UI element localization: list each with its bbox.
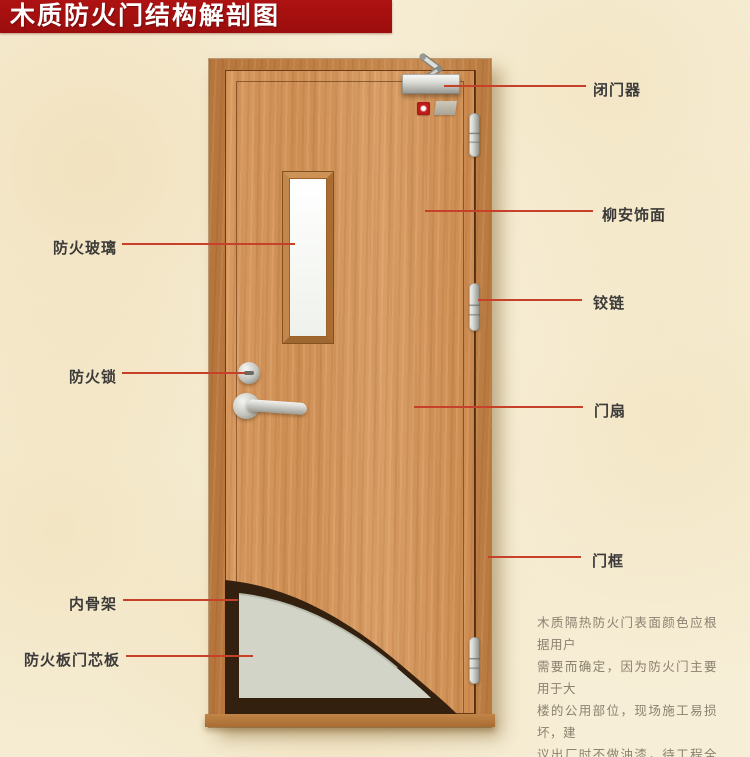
- label-door-frame: 门框: [592, 550, 624, 571]
- leader-door-closer: [444, 85, 586, 87]
- strike-plate: [434, 101, 457, 115]
- alarm-indicator: [417, 102, 430, 115]
- label-core-board: 防火板门芯板: [0, 649, 120, 670]
- leader-veneer: [425, 210, 593, 212]
- label-inner-skeleton: 内骨架: [0, 593, 117, 614]
- label-fire-glass: 防火玻璃: [0, 237, 117, 258]
- leader-hinge: [478, 299, 582, 301]
- leader-inner-skeleton: [123, 599, 238, 601]
- hinge-middle: [469, 283, 480, 331]
- door-closer-body: [402, 74, 460, 94]
- label-fire-lock: 防火锁: [0, 366, 117, 387]
- fire-glass-window: [283, 172, 333, 343]
- alarm-dot-icon: [421, 106, 426, 111]
- diagram-canvas: 木质防火门结构解剖图: [0, 0, 750, 757]
- leader-fire-lock: [122, 372, 246, 374]
- cutaway-section: [225, 570, 475, 714]
- description-text: 木质隔热防火门表面颜色应根据用户 需要而确定，因为防火门主要用于大 楼的公用部位…: [537, 612, 717, 757]
- page-title: 木质防火门结构解剖图: [0, 0, 392, 33]
- door-frame-sill: [205, 714, 495, 727]
- leader-core-board: [126, 655, 253, 657]
- label-hinge: 铰链: [593, 292, 625, 313]
- leader-door-leaf: [414, 406, 583, 408]
- label-veneer: 柳安饰面: [602, 204, 666, 225]
- door-illustration: [209, 59, 491, 727]
- title-banner: 木质防火门结构解剖图: [0, 0, 392, 33]
- leader-fire-glass: [122, 243, 295, 245]
- hinge-top: [469, 113, 480, 157]
- leader-door-frame: [488, 556, 581, 558]
- label-door-leaf: 门扇: [594, 400, 626, 421]
- core-board-layer: [239, 594, 431, 698]
- label-door-closer: 闭门器: [593, 79, 641, 100]
